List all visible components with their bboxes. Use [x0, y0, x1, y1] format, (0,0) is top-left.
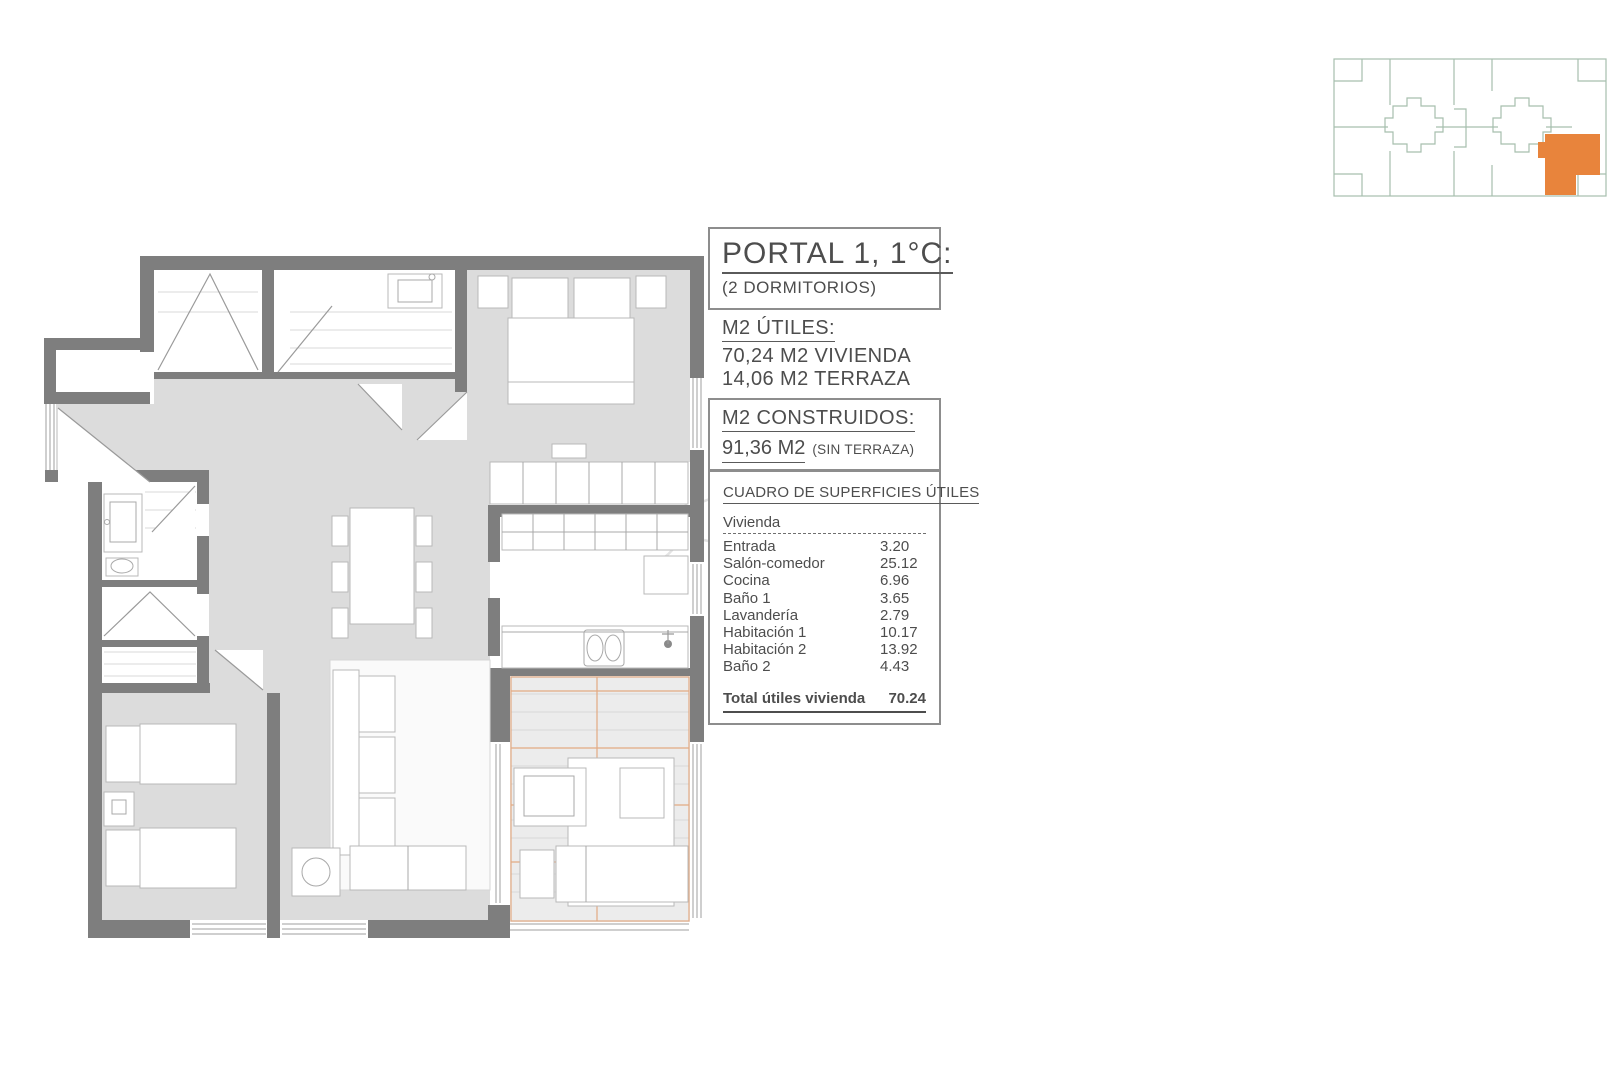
built-area-heading: M2 CONSTRUIDOS:: [722, 406, 915, 432]
table-total-row: Total útiles vivienda 70.24: [723, 689, 926, 713]
table-row: Habitación 110.17: [723, 624, 926, 641]
areas-table: CUADRO DE SUPERFICIES ÚTILES Vivienda En…: [708, 470, 941, 725]
bathroom-1: [278, 274, 452, 372]
areas-table-group: Vivienda: [723, 514, 926, 534]
building-key-plan: [1332, 57, 1608, 198]
usable-area-vivienda: 70,24 M2 VIVIENDA: [722, 345, 911, 368]
table-row: Salón-comedor25.12: [723, 555, 926, 572]
table-row: Baño 13.65: [723, 590, 926, 607]
bathroom-2: [104, 486, 196, 576]
table-row: Cocina6.96: [723, 572, 926, 589]
table-row: Lavandería2.79: [723, 607, 926, 624]
built-area-value: 91,36 M2: [722, 435, 805, 463]
usable-area-block: M2 ÚTILES: 70,24 M2 VIVIENDA 14,06 M2 TE…: [722, 316, 911, 391]
dining-area: [332, 508, 432, 638]
apartment-floor-plan: [30, 220, 710, 950]
usable-area-heading: M2 ÚTILES:: [722, 316, 835, 342]
unit-subtitle: (2 DORMITORIOS): [722, 276, 927, 300]
closet-laundry: [104, 592, 196, 676]
kitchen: [502, 514, 688, 668]
usable-area-terraza: 14,06 M2 TERRAZA: [722, 368, 911, 391]
total-value: 70.24: [888, 689, 926, 708]
built-area-note: (SIN TERRAZA): [812, 442, 914, 457]
table-row: Habitación 213.92: [723, 641, 926, 658]
floor-plan-sheet: { "unit": { "title": "PORTAL 1, 1°C:", "…: [0, 0, 1620, 1080]
built-area-box: M2 CONSTRUIDOS: 91,36 M2(SIN TERRAZA): [708, 398, 941, 471]
unit-title: PORTAL 1, 1°C:: [722, 237, 953, 274]
highlighted-unit: [1538, 134, 1600, 195]
table-row: Baño 24.43: [723, 658, 926, 675]
unit-title-box: PORTAL 1, 1°C: (2 DORMITORIOS): [708, 227, 941, 310]
entrance-closet: [158, 274, 258, 370]
total-label: Total útiles vivienda: [723, 689, 865, 708]
table-row: Entrada3.20: [723, 538, 926, 555]
areas-table-heading: CUADRO DE SUPERFICIES ÚTILES: [723, 484, 979, 504]
